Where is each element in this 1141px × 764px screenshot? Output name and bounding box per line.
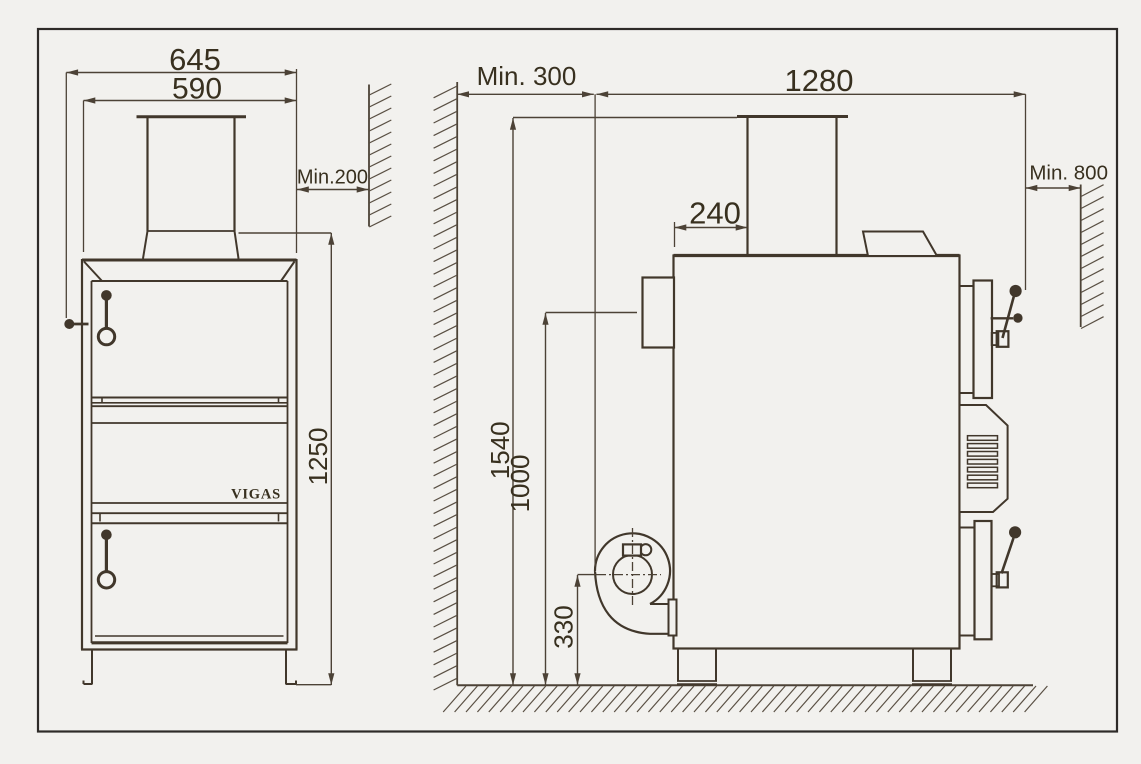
svg-text:590: 590 <box>172 72 222 105</box>
svg-text:Min. 300: Min. 300 <box>477 61 577 91</box>
svg-text:330: 330 <box>549 605 579 648</box>
svg-text:VIGAS: VIGAS <box>231 487 281 503</box>
svg-text:1250: 1250 <box>303 428 333 486</box>
svg-text:240: 240 <box>689 196 741 231</box>
svg-text:Min.200: Min.200 <box>297 167 368 189</box>
svg-text:1280: 1280 <box>785 63 854 98</box>
svg-text:Min. 800: Min. 800 <box>1029 162 1108 185</box>
svg-text:1000: 1000 <box>505 455 535 513</box>
